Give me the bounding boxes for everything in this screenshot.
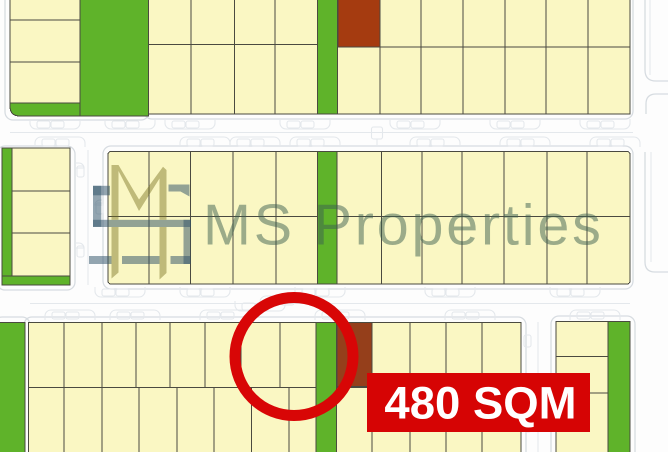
svg-text:MS Properties: MS Properties xyxy=(203,194,604,258)
svg-text:480 SQM: 480 SQM xyxy=(384,378,576,429)
